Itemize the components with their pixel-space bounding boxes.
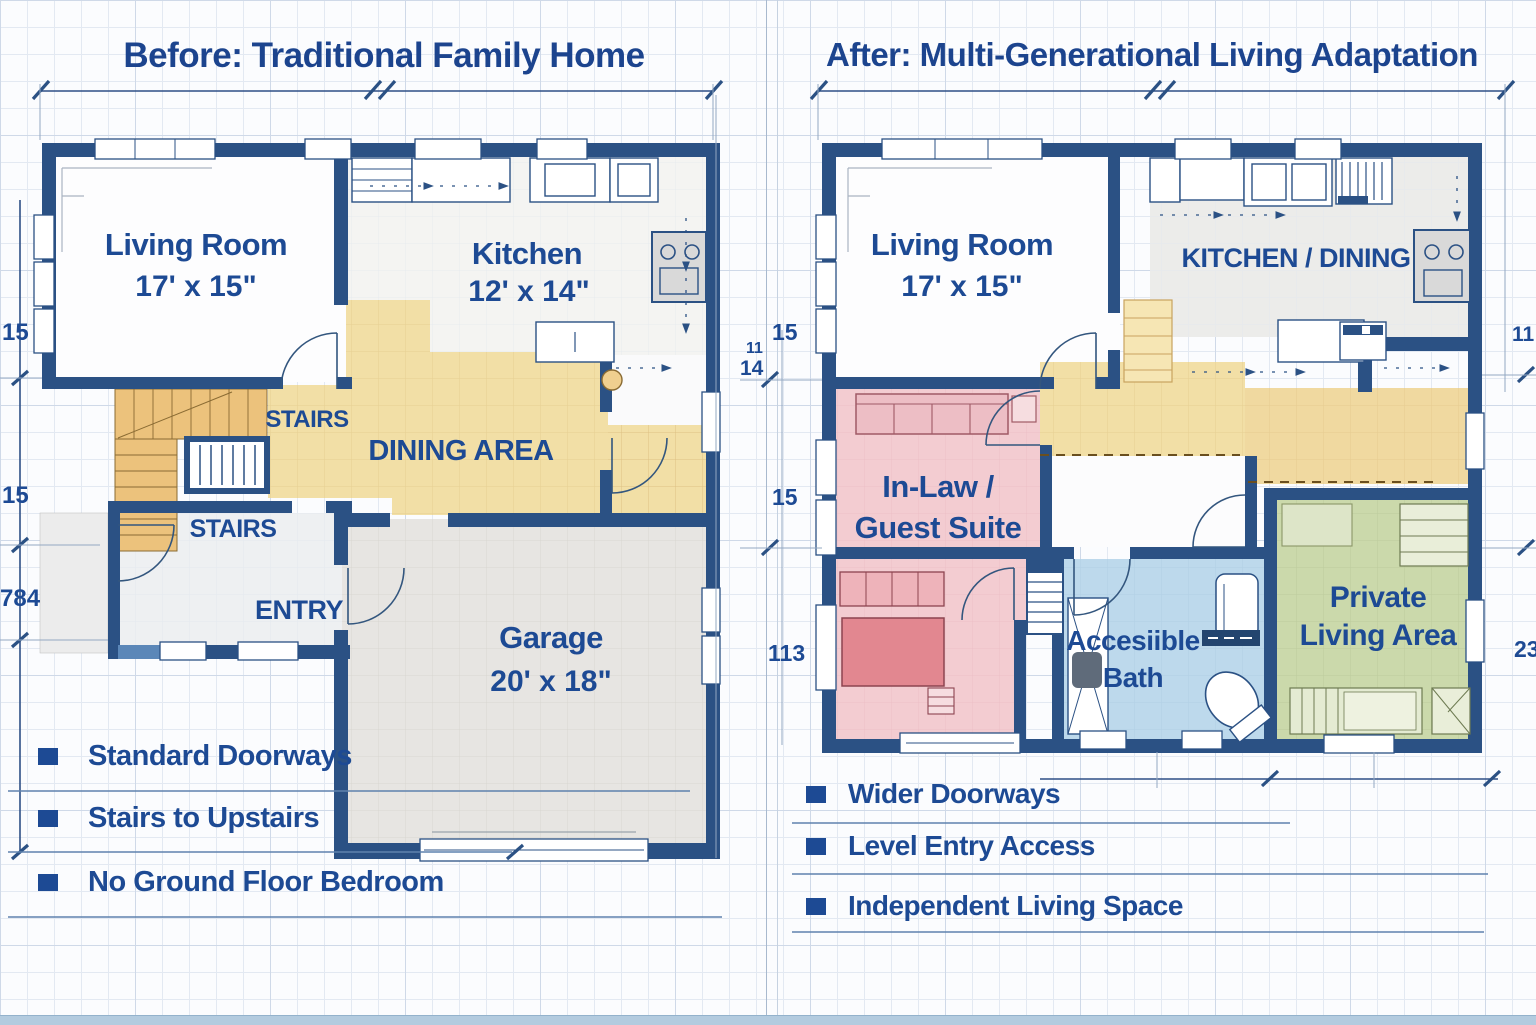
kitchen-size: 12' x 14" bbox=[468, 275, 589, 308]
kitchen-dining-label: KITCHEN / DINING bbox=[1181, 243, 1410, 273]
bath-label-2: Bath bbox=[1103, 662, 1163, 693]
vent-louver-icon bbox=[1336, 158, 1392, 204]
after-bullet-independent-living: Independent Living Space bbox=[780, 890, 1480, 940]
bench-icon bbox=[1290, 688, 1422, 734]
inlaw-label-2: Guest Suite bbox=[855, 510, 1022, 545]
garage-label: Garage bbox=[499, 620, 603, 655]
before-bullet-stairs: Stairs to Upstairs bbox=[10, 802, 710, 852]
living-room-label: Living Room bbox=[105, 227, 287, 262]
bullet-square-icon bbox=[38, 874, 58, 891]
stairs-lower-flight bbox=[115, 439, 177, 551]
after-bullet-level-entry: Level Entry Access bbox=[780, 830, 1480, 880]
bullet-label: No Ground Floor Bedroom bbox=[88, 866, 444, 899]
dim-right-11: 11 bbox=[1512, 323, 1535, 346]
bullet-square-icon bbox=[38, 748, 58, 765]
bullet-label: Stairs to Upstairs bbox=[88, 802, 319, 835]
private-label-1: Private bbox=[1330, 581, 1427, 614]
after-bullet-wider-doorways: Wider Doorways bbox=[780, 778, 1480, 828]
dim-mid-15: 15 bbox=[772, 484, 798, 510]
bullet-square-icon bbox=[806, 786, 826, 803]
dim-mid-113: 113 bbox=[768, 640, 805, 666]
stairs-upper-label: STAIRS bbox=[265, 406, 349, 433]
pantry-shelves bbox=[1124, 300, 1172, 382]
bath-label-1: Accesiible bbox=[1066, 625, 1200, 656]
dim-left-bottom: 784 bbox=[0, 585, 41, 612]
dim-mid-top: 15 bbox=[772, 319, 798, 345]
dim-mid-14: 14 bbox=[740, 357, 764, 380]
bullet-square-icon bbox=[806, 898, 826, 915]
bullet-label: Wider Doorways bbox=[848, 778, 1060, 810]
inlaw-label-1: In-Law / bbox=[882, 469, 994, 504]
before-floor-plan: 15 15 784 Living Room 17' x 15" Kitchen … bbox=[0, 81, 722, 917]
shelves-icon bbox=[1400, 504, 1468, 566]
sink-icon bbox=[652, 232, 706, 302]
sink-icon-right bbox=[1414, 230, 1470, 302]
before-bullet-no-bedroom: No Ground Floor Bedroom bbox=[10, 866, 710, 916]
dim-right-23: 23 bbox=[1514, 636, 1536, 662]
stairs-lower-label: STAIRS bbox=[190, 515, 277, 543]
before-bullet-standard-doorways: Standard Doorways bbox=[10, 740, 710, 790]
corner-desk-icon bbox=[1432, 688, 1470, 734]
private-label-2: Living Area bbox=[1300, 619, 1458, 652]
bullet-label: Level Entry Access bbox=[848, 830, 1095, 862]
vanity-icon bbox=[1216, 574, 1258, 638]
towel-bar-icon bbox=[1202, 630, 1260, 646]
bullet-square-icon bbox=[38, 810, 58, 827]
dim-left-top: 15 bbox=[2, 319, 29, 346]
kitchen-label: Kitchen bbox=[472, 236, 582, 271]
bullet-label: Independent Living Space bbox=[848, 890, 1183, 922]
bullet-label: Standard Doorways bbox=[88, 740, 352, 773]
living-room-label-right: Living Room bbox=[871, 227, 1053, 262]
dim-left-mid: 15 bbox=[2, 482, 29, 509]
dim-mid-11: 11 bbox=[746, 340, 763, 357]
bullet-square-icon bbox=[806, 838, 826, 855]
garage-size: 20' x 18" bbox=[490, 665, 611, 698]
living-room-size-right: 17' x 15" bbox=[901, 270, 1022, 303]
stairs-upper-flight bbox=[115, 389, 267, 439]
dishwasher-icon bbox=[1340, 322, 1386, 360]
entry-label: ENTRY bbox=[255, 595, 343, 625]
stairwell-railing bbox=[187, 439, 267, 491]
dining-area-label: DINING AREA bbox=[368, 435, 554, 467]
floor-drain-icon bbox=[602, 370, 622, 390]
closet-louver-icon bbox=[1027, 572, 1063, 634]
living-room-size: 17' x 15" bbox=[135, 270, 256, 303]
